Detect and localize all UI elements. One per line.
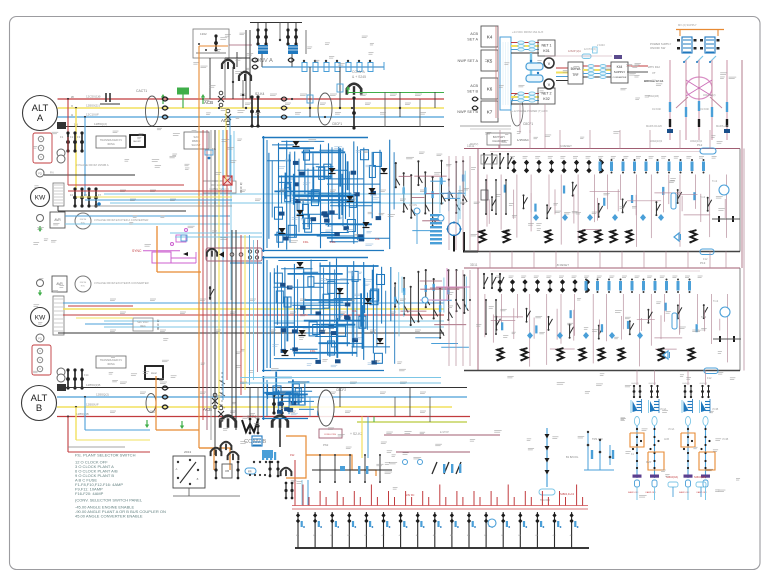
- svg-text:P13: P13: [700, 261, 706, 265]
- svg-text:GHG(2): GHG(2): [682, 383, 690, 385]
- svg-text:SHUNT: SHUNT: [133, 141, 141, 143]
- svg-text:TRF: TRF: [572, 73, 578, 77]
- svg-text:SET B: SET B: [467, 90, 478, 94]
- svg-text:KW: KW: [35, 315, 46, 322]
- svg-text:Tm2: Tm2: [700, 195, 706, 199]
- svg-text:F2: F2: [70, 135, 74, 139]
- svg-text:NET 2: NET 2: [541, 92, 551, 96]
- svg-text:FDL: FDL: [310, 349, 316, 353]
- svg-text:01 K02I: 01 K02I: [700, 107, 709, 111]
- svg-text:A: A: [37, 113, 44, 124]
- svg-text:S2-K4: S2-K4: [255, 92, 265, 96]
- svg-text:AVR: AVR: [56, 282, 63, 286]
- svg-text:PROP: PROP: [151, 373, 158, 375]
- svg-text:& + S245: & + S245: [352, 75, 366, 79]
- svg-text:GD ON: GD ON: [409, 204, 417, 207]
- svg-text:12B50UF: 12B50UF: [86, 403, 99, 407]
- svg-text:24V DC: 24V DC: [406, 494, 415, 497]
- svg-text:01 K02I: 01 K02I: [652, 107, 661, 111]
- svg-text:F3: F3: [77, 135, 81, 139]
- svg-text:+ S2-K2: + S2-K2: [350, 432, 362, 436]
- svg-text:12S2P (2)A: 12S2P (2)A: [568, 50, 581, 53]
- svg-text:3 PHASE FROM EXCITER A CONVER: 3 PHASE FROM EXCITER A CONVERTER: [94, 218, 148, 222]
- svg-text:Tm2: Tm2: [713, 299, 719, 303]
- svg-text:VC1B: VC1B: [722, 438, 729, 441]
- svg-text:12B5Q(2): 12B5Q(2): [94, 122, 107, 126]
- svg-text:320A6D(2): 320A6D(2): [703, 93, 716, 97]
- svg-text:SUPPLY: SUPPLY: [614, 70, 626, 74]
- svg-text:RMP: RMP: [646, 461, 652, 464]
- svg-text:FDL: FDL: [303, 240, 309, 244]
- svg-text:FDL: FDL: [375, 237, 380, 241]
- svg-text:FQ: FQ: [38, 336, 42, 340]
- svg-text:FR: FR: [248, 470, 252, 474]
- svg-text:12B50(2)B: 12B50(2)B: [86, 383, 100, 387]
- svg-text:MCP(2): MCP(2): [470, 143, 478, 146]
- svg-text:MARS D1426: MARS D1426: [646, 124, 662, 128]
- svg-text:FDL: FDL: [330, 240, 336, 244]
- svg-text:C8CF1: C8CF1: [523, 122, 533, 126]
- svg-text:50KVA: 50KVA: [571, 67, 582, 71]
- svg-text:OB: OB: [225, 469, 229, 473]
- svg-text:EXC: EXC: [81, 286, 86, 288]
- svg-text:3 PHASE FROM 1N50B A: 3 PHASE FROM 1N50B A: [76, 163, 109, 167]
- svg-text:TRS OFF: TRS OFF: [592, 437, 604, 441]
- svg-text:VC1B: VC1B: [712, 408, 719, 411]
- svg-text:1/15VAC: 1/15VAC: [517, 138, 530, 142]
- svg-text:2D13: 2D13: [184, 450, 192, 454]
- svg-text:F14: F14: [84, 373, 89, 377]
- svg-text:REG: REG: [140, 325, 145, 328]
- svg-text:VC1A: VC1A: [668, 428, 675, 431]
- svg-text:12C10UF: 12C10UF: [86, 113, 99, 117]
- svg-text:NET 1: NET 1: [541, 44, 551, 48]
- svg-text:K5: K5: [487, 59, 493, 64]
- svg-text:NWP SET B: NWP SET B: [457, 110, 478, 114]
- svg-text:ACB: ACB: [664, 438, 669, 441]
- svg-text:MARS+4B: MARS+4B: [716, 124, 728, 128]
- svg-text:CONV-CONV: CONV-CONV: [324, 434, 337, 436]
- svg-text:GHG(2): GHG(2): [631, 383, 639, 385]
- svg-text:FDL: FDL: [352, 309, 357, 313]
- svg-text:FROM: FROM: [80, 219, 87, 221]
- svg-text:KW: KW: [35, 195, 46, 202]
- svg-text:Tm2: Tm2: [701, 315, 707, 319]
- svg-text:SET A: SET A: [467, 38, 478, 42]
- svg-text:SYNC: SYNC: [132, 249, 142, 253]
- svg-text:F12: F12: [707, 376, 712, 380]
- svg-text:(CONV. SELECTOR SWITCH PANEL: (CONV. SELECTOR SWITCH PANEL: [75, 498, 143, 503]
- svg-text:12B5(2)B: 12B5(2)B: [76, 412, 89, 416]
- svg-text:K6: K6: [487, 87, 493, 92]
- svg-text:K7: K7: [487, 110, 493, 115]
- svg-text:ACB: ACB: [470, 32, 478, 36]
- svg-text:TRANSDUCER KV: TRANSDUCER KV: [100, 358, 122, 362]
- svg-text:300VA: 300VA: [107, 142, 115, 146]
- svg-text:2/PV D12: 2/PV D12: [648, 65, 660, 69]
- svg-text:K4: K4: [487, 35, 493, 40]
- svg-text:3D11: 3D11: [470, 263, 478, 267]
- svg-text:2 1643: 2 1643: [597, 44, 605, 47]
- svg-text:GHG(2): GHG(2): [700, 383, 708, 385]
- svg-text:-B: -B: [196, 478, 199, 481]
- svg-text:W: W: [71, 95, 74, 99]
- svg-text:A RESET: A RESET: [560, 144, 572, 148]
- svg-text:1362: 1362: [200, 32, 207, 36]
- svg-text:F1: F1: [60, 135, 64, 139]
- svg-text:C8CF2: C8CF2: [336, 388, 346, 392]
- svg-text:S2B04,D+C2: S2B04,D+C2: [560, 493, 575, 496]
- svg-text:B1 B/COIL: B1 B/COIL: [566, 455, 579, 459]
- svg-text:320A(1B): 320A(1B): [648, 94, 659, 98]
- svg-text:S2604(OA): S2604(OA): [694, 476, 706, 479]
- svg-text:P62: P62: [323, 443, 329, 447]
- svg-text:K01: K01: [543, 49, 549, 53]
- svg-text:AVR: AVR: [54, 218, 61, 222]
- svg-text:GHG(2): GHG(2): [649, 383, 657, 385]
- svg-text:S2C VOLT: S2C VOLT: [137, 321, 149, 324]
- svg-text:-B RESET: -B RESET: [556, 263, 569, 267]
- svg-text:F16-F20: 4AMP: F16-F20: 4AMP: [75, 491, 104, 496]
- svg-text:CONVERTER: CONVERTER: [613, 77, 627, 79]
- svg-text:320A(10)3: 320A(10)3: [650, 139, 663, 143]
- svg-text:P.E. PLANT SELECTOR SWITCH: P.E. PLANT SELECTOR SWITCH: [75, 453, 136, 458]
- svg-text:Tm2: Tm2: [712, 179, 718, 183]
- svg-text:ACB: ACB: [470, 84, 478, 88]
- svg-text:12 FT2 (2): 12 FT2 (2): [584, 48, 596, 51]
- svg-text:BRDG+ 12:A1: BRDG+ 12:A1: [644, 79, 664, 83]
- svg-text:U: U: [71, 113, 73, 117]
- svg-text:S2604(OA): S2604(OA): [666, 476, 678, 479]
- svg-text:S2C: S2C: [193, 135, 198, 139]
- svg-text:B: B: [36, 403, 42, 414]
- svg-text:-A: -A: [175, 468, 178, 471]
- svg-text:BATTERY: BATTERY: [493, 135, 505, 139]
- svg-text:S2-K2: S2-K2: [247, 415, 257, 419]
- svg-text:45.00 ANGLE CONVERTER ENABLE: 45.00 ANGLE CONVERTER ENABLE: [75, 514, 143, 519]
- svg-text:300VA: 300VA: [107, 362, 115, 366]
- svg-text:C8CF1: C8CF1: [332, 122, 342, 126]
- svg-text:12B50(2)1: 12B50(2)1: [86, 104, 100, 108]
- svg-text:P12: P12: [697, 143, 703, 147]
- svg-text:K44: K44: [617, 65, 623, 69]
- svg-text:E-STOP: E-STOP: [440, 431, 449, 434]
- svg-text:CONV A: CONV A: [352, 70, 366, 74]
- svg-text:TRA OFF: TRA OFF: [540, 499, 551, 502]
- svg-text:VT: VT: [652, 71, 656, 75]
- svg-text:K02: K02: [543, 97, 549, 101]
- svg-text:TRANSDUCER KV: TRANSDUCER KV: [100, 138, 122, 142]
- svg-text:NWP SET A: NWP SET A: [457, 59, 478, 63]
- svg-text:FQ: FQ: [38, 171, 42, 175]
- svg-text:FROM: FROM: [80, 282, 87, 284]
- svg-text:12C50(1)B: 12C50(1)B: [86, 95, 101, 99]
- svg-text:POWER SUPPLY: POWER SUPPLY: [650, 42, 672, 46]
- svg-text:FS2: FS2: [290, 454, 295, 457]
- svg-text:3 PHASE FROM EXCITER B CONVER: 3 PHASE FROM EXCITER B CONVERTER: [94, 281, 149, 285]
- svg-text:12B5Q(2): 12B5Q(2): [96, 393, 109, 397]
- svg-text:V: V: [71, 104, 73, 108]
- svg-text:CACT1: CACT1: [136, 89, 147, 93]
- svg-text:ON/OFF SW: ON/OFF SW: [650, 46, 666, 50]
- svg-text:FN: FN: [50, 171, 54, 175]
- svg-text:+24 VDC FROM 1S2 AUX: +24 VDC FROM 1S2 AUX: [512, 30, 543, 34]
- svg-text:MV (2) SUPPLY: MV (2) SUPPLY: [678, 23, 697, 27]
